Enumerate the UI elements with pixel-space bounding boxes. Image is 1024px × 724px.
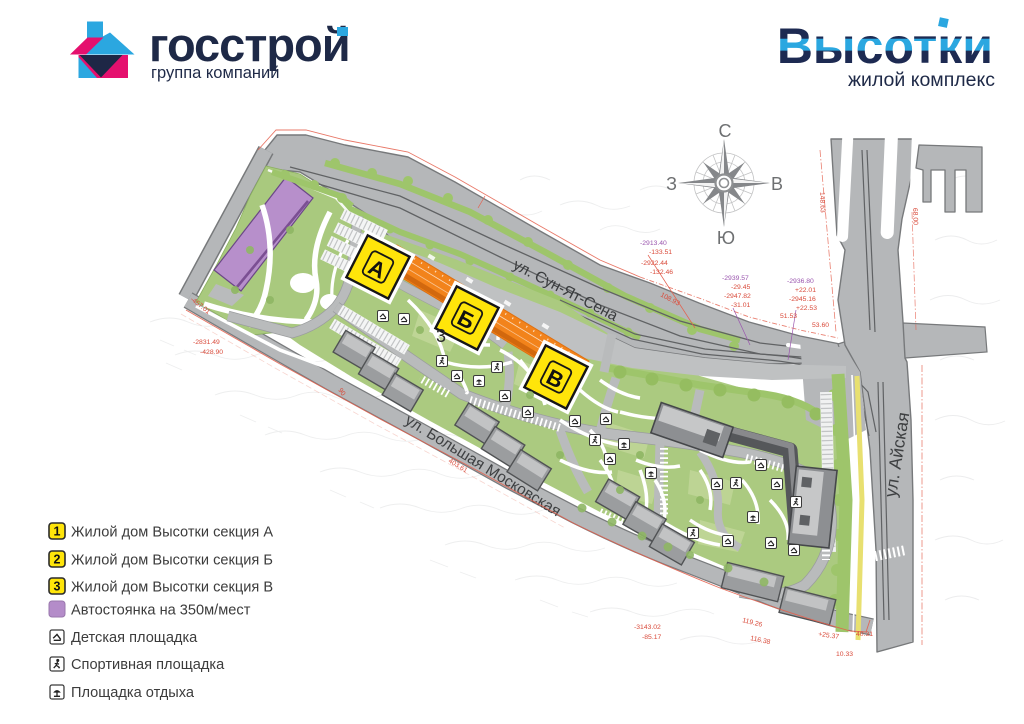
svg-text:жилой комплекс: жилой комплекс	[848, 69, 995, 91]
svg-text:Ю: Ю	[717, 228, 735, 248]
svg-text:-2831.49: -2831.49	[193, 339, 220, 346]
svg-text:Жилой дом Высотки секция В: Жилой дом Высотки секция В	[71, 580, 273, 596]
svg-text:-2922.44: -2922.44	[641, 260, 668, 267]
svg-text:68.00: 68.00	[911, 208, 919, 225]
svg-text:10.33: 10.33	[836, 651, 853, 658]
svg-text:1: 1	[54, 525, 61, 539]
svg-text:148.63: 148.63	[818, 192, 826, 213]
svg-text:С: С	[719, 121, 732, 141]
svg-text:+22.53: +22.53	[796, 305, 817, 312]
svg-text:Детская площадка: Детская площадка	[71, 630, 198, 646]
svg-text:-133.51: -133.51	[649, 249, 672, 256]
svg-text:З: З	[666, 174, 677, 194]
svg-text:53.60: 53.60	[812, 322, 829, 329]
svg-text:-2945.16: -2945.16	[789, 296, 816, 303]
svg-text:51.53: 51.53	[780, 313, 797, 320]
svg-text:3: 3	[436, 326, 446, 346]
svg-text:-31.01: -31.01	[731, 302, 750, 309]
svg-text:-29.45: -29.45	[731, 284, 750, 291]
svg-text:-2939.57: -2939.57	[722, 275, 749, 282]
svg-text:2: 2	[54, 553, 61, 567]
svg-text:-3143.02: -3143.02	[634, 624, 661, 631]
svg-text:Площадка отдыха: Площадка отдыха	[71, 685, 195, 701]
svg-text:Высотки: Высотки	[777, 18, 993, 74]
svg-text:3: 3	[54, 580, 61, 594]
svg-text:Жилой дом Высотки секция А: Жилой дом Высотки секция А	[71, 525, 273, 541]
svg-text:Автостоянка на 350м/мест: Автостоянка на 350м/мест	[71, 603, 251, 619]
svg-text:-132.46: -132.46	[650, 269, 673, 276]
svg-text:группа компаний: группа компаний	[151, 64, 279, 82]
svg-text:В: В	[771, 174, 783, 194]
svg-text:-2947.82: -2947.82	[724, 293, 751, 300]
svg-text:Спортивная площадка: Спортивная площадка	[71, 657, 225, 673]
svg-text:-428.90: -428.90	[200, 349, 223, 356]
svg-text:+22.01: +22.01	[795, 287, 816, 294]
svg-text:40.31: 40.31	[856, 631, 873, 638]
svg-text:Жилой дом Высотки секция Б: Жилой дом Высотки секция Б	[71, 553, 273, 569]
svg-text:-2936.80: -2936.80	[787, 278, 814, 285]
svg-text:-85.17: -85.17	[642, 634, 661, 641]
svg-text:-2913.40: -2913.40	[640, 240, 667, 247]
